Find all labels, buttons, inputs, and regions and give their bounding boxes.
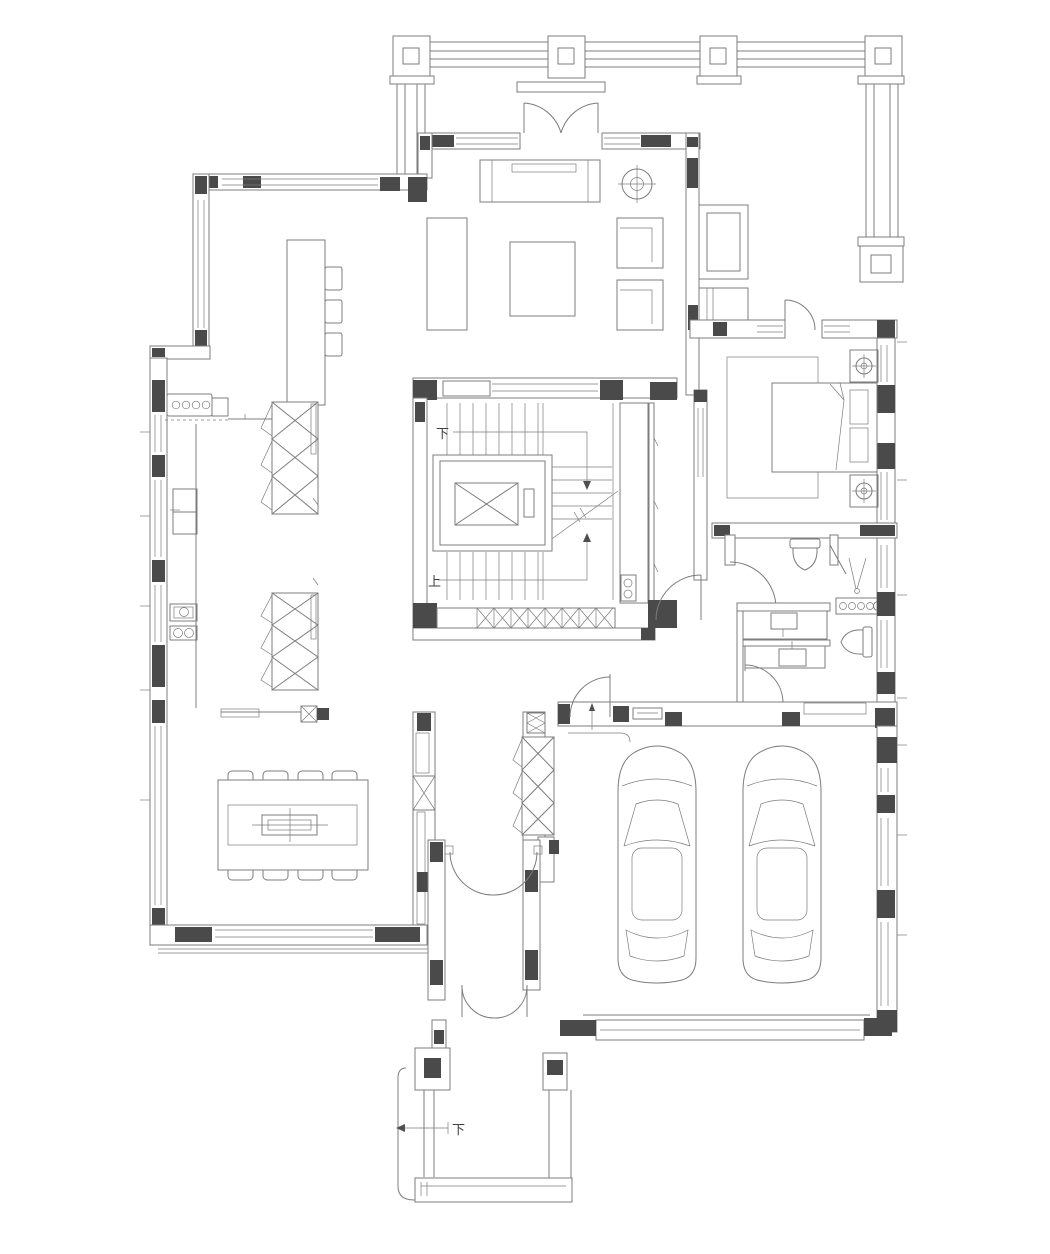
display-cabinet-icon [261, 593, 318, 690]
toilet-icon [841, 627, 872, 657]
pergola-column-icon [860, 246, 903, 282]
french-door-icon [524, 103, 598, 133]
nightstand-lamp-icon [850, 475, 878, 507]
porch-column-icon [415, 1048, 450, 1090]
porch-column-icon [543, 1053, 567, 1090]
ceiling-light-icon [618, 165, 656, 203]
washer-panel-icon [836, 598, 883, 614]
refrigerator-icon [170, 489, 197, 534]
floor-plan-drawing: 下 上 [0, 0, 1050, 1254]
bar-stool-icon [325, 300, 342, 323]
porch: 下 [396, 1048, 572, 1202]
car-icon [743, 746, 821, 983]
stair-up-label: 上 [428, 575, 441, 590]
car-icon [618, 746, 696, 983]
bar-counter-icon [287, 240, 325, 405]
armchair-icon [617, 280, 663, 330]
bar-stool-icon [325, 267, 342, 290]
armchair-icon [617, 218, 663, 268]
stair-down-label: 下 [436, 427, 449, 442]
garage-door-icon [596, 1020, 864, 1040]
shoe-cabinet-icon [301, 706, 329, 722]
bedroom [690, 300, 907, 580]
dining-table-icon [218, 780, 368, 870]
kitchen-sink-icon [167, 394, 228, 416]
dining-room [150, 706, 430, 953]
shoe-cabinet-icon [527, 713, 545, 733]
sofa-icon [480, 160, 600, 202]
pergola-column-icon [393, 36, 430, 78]
shoe-cabinet-icon [413, 776, 435, 810]
floor-plan-page: 下 上 [0, 0, 1050, 1254]
bar-area [150, 174, 427, 405]
pergola-column-icon [700, 36, 737, 78]
garage [558, 674, 907, 1040]
stair-hall: 下 上 [413, 378, 677, 640]
vanity-sink-icon [743, 611, 827, 639]
storage-cabinet-icon [437, 608, 615, 628]
screen-cabinet-icon [620, 403, 658, 603]
console-table-icon [427, 218, 467, 330]
entry-double-door-icon [462, 985, 527, 1018]
coffee-table-icon [510, 242, 575, 316]
nightstand-lamp-icon [850, 350, 878, 382]
living-room [418, 82, 748, 395]
cooktop-icon [170, 626, 197, 640]
pergola-column-icon [548, 36, 585, 78]
bed-icon [772, 383, 877, 472]
porch-step-down-label: 下 [452, 1123, 465, 1138]
foyer [428, 840, 542, 1050]
toilet-icon [790, 539, 820, 570]
bar-stool-icon [325, 333, 342, 356]
bay-niche [699, 205, 748, 330]
pergola-column-icon [865, 36, 902, 78]
bedroom-door-icon [785, 300, 815, 330]
shoe-cabinet-icon [513, 737, 554, 835]
cooktop-icon [170, 604, 197, 621]
elevator-icon [433, 455, 552, 551]
